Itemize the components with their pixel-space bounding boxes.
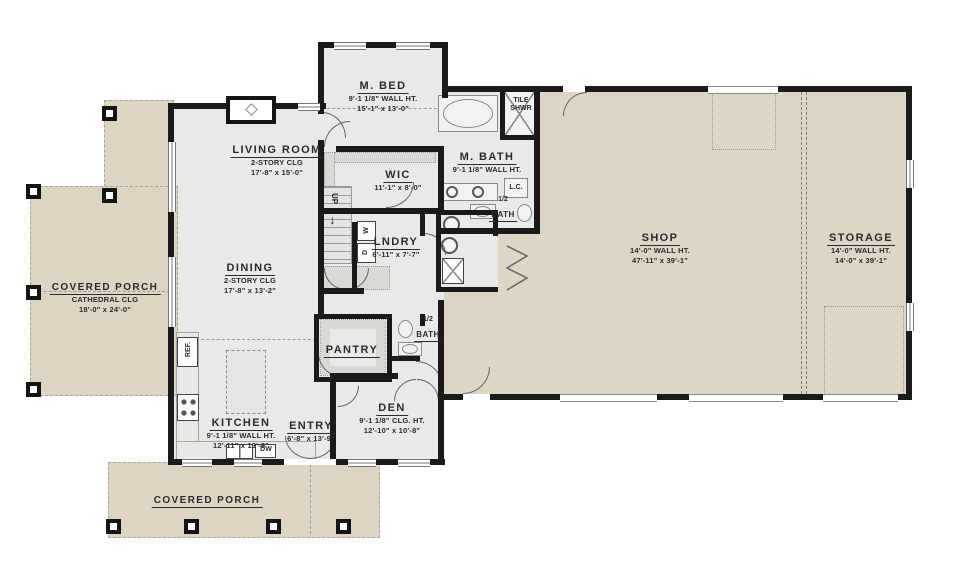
- room-detail: 9'-1 1/8" WALL HT.: [207, 431, 276, 441]
- room-detail: CATHEDRAL CLG: [50, 295, 161, 305]
- room-detail: 17'-8" x 15'-0": [230, 168, 323, 178]
- wall: [420, 214, 425, 236]
- tile-shower-label: TILE SHWR: [510, 97, 531, 113]
- window: [398, 459, 430, 467]
- shop-storage-divider-line: [801, 92, 807, 394]
- kitchen-label: KITCHEN 9'-1 1/8" WALL HT. 12'-11" x 13'…: [207, 413, 276, 451]
- wall: [336, 146, 444, 152]
- wall: [387, 314, 392, 382]
- porch-column: [336, 519, 351, 534]
- wall: [436, 287, 498, 292]
- storage-label: STORAGE 14'-0" WALL HT. 14'-0" x 39'-1": [827, 228, 895, 266]
- range-stove: [177, 394, 199, 421]
- garage-door: [823, 394, 898, 402]
- room-name: STORAGE: [827, 232, 895, 246]
- room-detail: 12'-10" x 10'-8": [359, 426, 425, 436]
- room-name: LIVING ROOM: [230, 144, 323, 158]
- entry-door-opening: [284, 459, 336, 465]
- room-detail: 14'-0" WALL HT.: [630, 246, 690, 256]
- room-detail: 17'-8" x 13'-2": [224, 286, 276, 296]
- dryer-label: D: [362, 250, 369, 255]
- room-name: BATH: [414, 331, 442, 342]
- vanity-sink: [472, 186, 484, 198]
- bathtub-basin: [443, 99, 493, 128]
- room-name: ENTRY: [287, 420, 335, 434]
- garage-door: [560, 394, 657, 402]
- half-bath-sink: [402, 344, 418, 354]
- porch-column: [102, 106, 117, 121]
- linen-closet-label: L.C.: [509, 184, 522, 192]
- wic-label: WIC 11'-1" x 8'-0": [374, 165, 421, 193]
- den-label: DEN 9'-1 1/8" CLG. HT. 12'-10" x 10'-8": [359, 398, 425, 436]
- window: [168, 142, 176, 212]
- room-detail: 11'-1" x 8'-0": [374, 183, 421, 193]
- wall: [906, 86, 912, 400]
- room-name: PANTRY: [324, 344, 380, 358]
- half-bath-label: 1/2 BATH: [489, 196, 517, 222]
- wall: [442, 42, 448, 98]
- furnace: [442, 258, 464, 284]
- room-name: DINING: [225, 262, 276, 276]
- shop-label: SHOP 14'-0" WALL HT. 47'-11" x 39'-1": [630, 228, 690, 266]
- covered-porch-left-label: COVERED PORCH CATHEDRAL CLG 18'-0" x 24'…: [50, 277, 161, 315]
- room-detail: 6'-8" x 13'-9": [287, 434, 335, 444]
- wall: [438, 146, 444, 214]
- room-detail: 6'-11" x 7'-7": [372, 250, 420, 260]
- window: [396, 42, 430, 50]
- room-name: WIC: [383, 169, 413, 183]
- room-detail: 9'-1 1/8" CLG. HT.: [359, 416, 425, 426]
- closet-label: L.C.: [509, 184, 522, 192]
- wall: [392, 356, 420, 361]
- room-detail: 14'-0" WALL HT.: [827, 246, 895, 256]
- room-name: BATH: [489, 211, 517, 222]
- laundry-label: LNDRY 6'-11" x 7'-7": [372, 232, 420, 260]
- master-bath-label: M. BATH 9'-1 1/8" WALL HT.: [453, 147, 522, 175]
- shop-door-opening: [563, 86, 585, 92]
- window: [334, 42, 366, 50]
- refrigerator-label: REF.: [185, 342, 192, 357]
- dining-room-label: DINING 2-STORY CLG 17'-8" x 13'-2": [224, 258, 276, 296]
- master-bed-label: M. BED 9'-1 1/8" WALL HT. 15'-1" x 13'-0…: [349, 76, 418, 114]
- toilet: [398, 320, 413, 338]
- living-room-label: LIVING ROOM 2-STORY CLG 17'-8" x 15'-0": [230, 140, 323, 178]
- room-name: COVERED PORCH: [152, 495, 263, 508]
- attic-access-zigzag: [505, 244, 531, 292]
- wall: [500, 88, 505, 140]
- wall: [490, 394, 560, 400]
- stairs-up-label: UP: [330, 193, 339, 204]
- porch-column: [26, 285, 41, 300]
- window: [906, 160, 914, 188]
- half-bath-label: 1/2 BATH: [414, 316, 442, 342]
- kitchen-island: [226, 350, 266, 414]
- room-detail: 15'-1" x 13'-0": [349, 104, 418, 114]
- covered-porch-bottom-label: COVERED PORCH: [152, 490, 263, 508]
- garage-door: [689, 394, 783, 402]
- fireplace-vent: [245, 103, 258, 116]
- wall: [500, 135, 540, 140]
- wic-shelving: [324, 152, 436, 163]
- porch-column: [26, 382, 41, 397]
- room-name: DEN: [376, 402, 407, 416]
- room-detail: 2-STORY CLG: [224, 276, 276, 286]
- window: [906, 303, 914, 331]
- floor-plan: LIVING ROOM 2-STORY CLG 17'-8" x 15'-0" …: [0, 0, 960, 571]
- room-name: SHOP: [640, 232, 681, 246]
- wall: [436, 210, 441, 292]
- room-name: KITCHEN: [210, 417, 273, 431]
- room-name: LNDRY: [372, 236, 420, 250]
- room-name: 1/2: [414, 316, 442, 324]
- vanity-sink: [446, 186, 458, 198]
- room-detail: 2-STORY CLG: [230, 158, 323, 168]
- wall: [318, 208, 444, 214]
- room-name: TILE: [510, 97, 531, 105]
- washer-label: W: [363, 227, 370, 234]
- porch-joint-line: [310, 464, 311, 534]
- window: [298, 103, 320, 111]
- fireplace: [226, 96, 276, 124]
- room-detail: 47'-11" x 39'-1": [630, 256, 690, 266]
- window: [182, 459, 212, 467]
- wall: [534, 86, 540, 234]
- toilet: [517, 204, 532, 222]
- wall: [318, 214, 324, 316]
- window: [348, 459, 376, 467]
- room-detail: 9'-1 1/8" WALL HT.: [349, 94, 418, 104]
- shop-door-opening: [463, 394, 490, 400]
- porch-column: [106, 519, 121, 534]
- room-name: M. BED: [358, 80, 409, 94]
- dishwasher-label: DW: [260, 446, 272, 454]
- overhead-door-track: [712, 92, 776, 150]
- wall: [314, 314, 392, 319]
- wall: [318, 288, 364, 294]
- entry-label: ENTRY 6'-8" x 13'-9": [287, 416, 335, 444]
- wall: [314, 314, 319, 382]
- window: [234, 459, 262, 467]
- wall: [442, 86, 912, 92]
- wall: [352, 222, 357, 292]
- wall: [436, 228, 540, 234]
- stairs-direction-arrow: ↓: [329, 212, 336, 227]
- room-detail: 9'-1 1/8" WALL HT.: [453, 165, 522, 175]
- garage-door: [708, 86, 778, 94]
- porch-column: [102, 188, 117, 203]
- room-name: SHWR: [510, 105, 531, 113]
- room-detail: 14'-0" x 39'-1": [827, 256, 895, 266]
- appliance-label: DW: [260, 446, 272, 454]
- wall: [783, 394, 823, 400]
- room-name: M. BATH: [458, 151, 517, 165]
- wall: [318, 42, 324, 109]
- pantry-label: PANTRY: [324, 340, 380, 358]
- porch-column: [184, 519, 199, 534]
- wall: [442, 394, 464, 400]
- window: [168, 257, 176, 327]
- room-name: COVERED PORCH: [50, 282, 161, 295]
- porch-column: [26, 184, 41, 199]
- room-detail: 18'-0" x 24'-0": [50, 305, 161, 315]
- overhead-door-track: [824, 306, 904, 394]
- porch-column: [266, 519, 281, 534]
- room-name: 1/2: [489, 196, 517, 204]
- wall: [657, 394, 689, 400]
